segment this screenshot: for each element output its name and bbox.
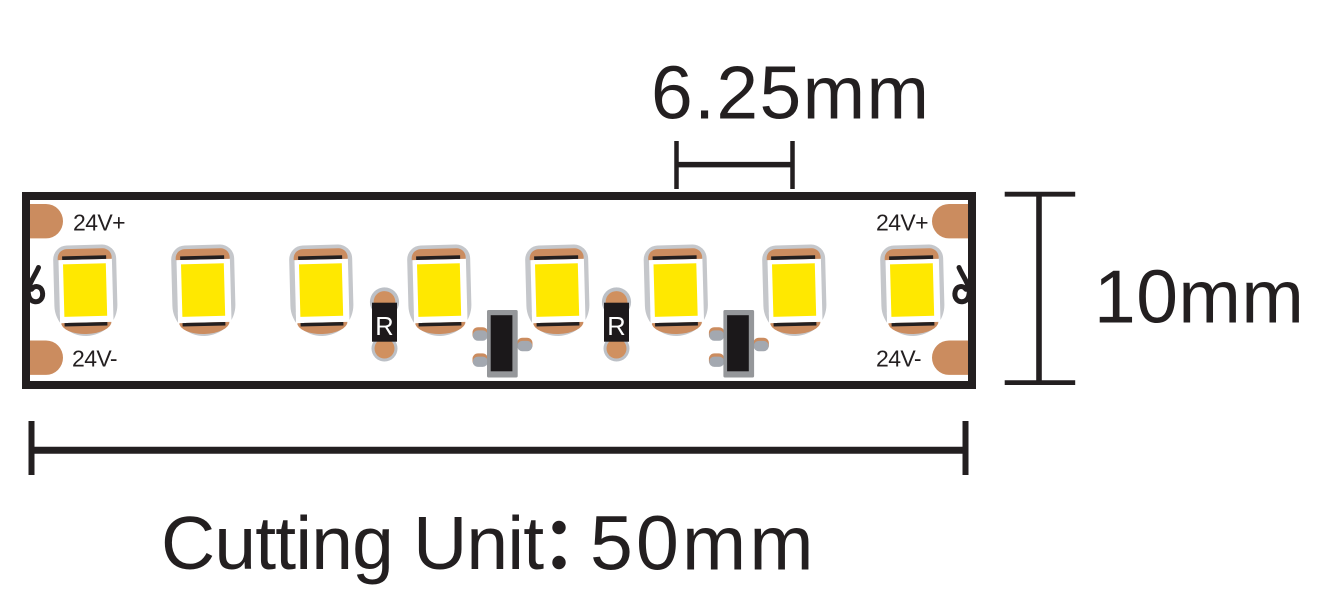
svg-text:6.25mm: 6.25mm: [651, 51, 930, 135]
svg-text:24V-: 24V-: [72, 346, 117, 372]
svg-text:10mm: 10mm: [1094, 255, 1304, 339]
svg-text:24V+: 24V+: [73, 210, 125, 236]
svg-text:24V+: 24V+: [876, 210, 928, 236]
svg-text:24V-: 24V-: [876, 346, 921, 372]
svg-text:Cutting Unit: Cutting Unit: [161, 501, 544, 585]
svg-text:50mm: 50mm: [590, 501, 817, 587]
